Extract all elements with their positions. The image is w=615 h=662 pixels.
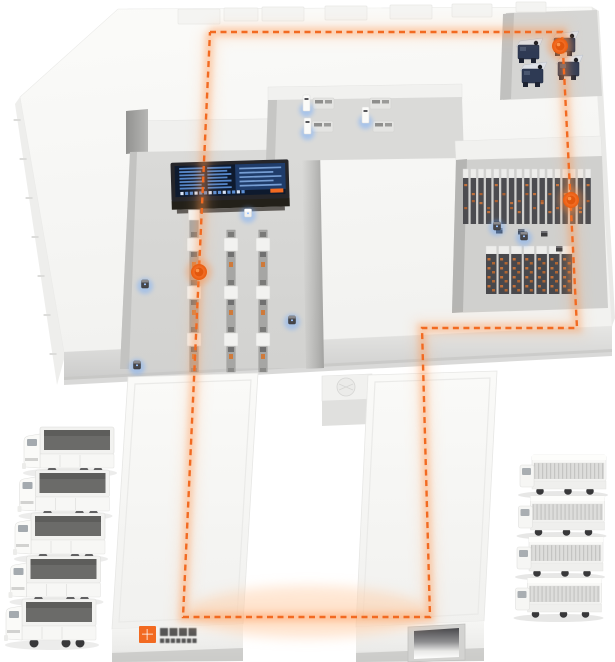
marker-core <box>556 42 565 51</box>
cab-window <box>9 611 19 618</box>
iot-device <box>137 278 153 294</box>
ribbed-panel <box>531 545 601 561</box>
ribbed-panel <box>534 463 604 479</box>
screen-accent <box>270 188 283 192</box>
dock-door-opening <box>414 628 459 659</box>
conveyor-station <box>224 238 238 251</box>
waypoint-conveyor-line <box>186 259 212 285</box>
conveyor-item <box>229 262 233 267</box>
cab-window <box>27 439 37 446</box>
conveyor-station <box>224 286 238 299</box>
cab-window <box>18 525 28 532</box>
conveyor-station <box>256 286 270 299</box>
rack-column-tall <box>585 169 590 224</box>
illustration-stage <box>0 0 615 662</box>
marker-highlight <box>557 43 561 47</box>
rack-column-short <box>486 246 497 294</box>
conveyor-station <box>256 238 270 251</box>
conveyor-station <box>256 333 270 346</box>
marker-highlight <box>196 269 200 273</box>
workstation-table <box>370 98 391 109</box>
cab-window <box>14 568 24 575</box>
wall-doorway-notch <box>126 109 148 154</box>
waypoint-storage-racks <box>558 187 584 213</box>
floor-box <box>541 231 548 237</box>
roof-skylight <box>262 7 304 21</box>
screen-tick <box>213 191 216 194</box>
connector-face <box>322 399 370 426</box>
rack-column-short <box>549 246 560 294</box>
conveyor-item <box>229 354 233 359</box>
conveyor-item <box>229 310 233 315</box>
cab-window <box>521 509 530 516</box>
roof-skylight <box>516 2 546 12</box>
workstation-table <box>313 98 334 109</box>
waypoint-top-dock <box>547 33 573 59</box>
screen-tick <box>180 192 183 195</box>
rack-column-tall <box>486 169 491 224</box>
iot-device <box>129 359 145 375</box>
rack-column-tall <box>540 169 545 224</box>
isometric-scene <box>0 0 615 662</box>
screen-tick <box>190 192 193 195</box>
marker-core <box>195 268 204 277</box>
roof-skylight <box>452 4 492 17</box>
roof-skylight <box>224 8 258 21</box>
rack-column-tall <box>509 169 514 224</box>
truck-left <box>4 599 99 650</box>
screen-tick <box>237 190 240 193</box>
screen-tick <box>223 191 226 194</box>
roof-skylight <box>178 9 220 24</box>
iot-device <box>489 220 505 236</box>
workstation-table <box>373 121 394 132</box>
conveyor-item <box>261 262 265 267</box>
conveyor-station <box>224 333 238 346</box>
rack-column-tall <box>494 169 499 224</box>
screen-tick <box>232 190 235 193</box>
iot-device <box>284 314 300 330</box>
cab-window <box>23 482 33 489</box>
conveyor-item <box>261 354 265 359</box>
screen-tick <box>227 190 230 193</box>
rack-column-tall <box>517 169 522 224</box>
iot-device <box>516 230 532 246</box>
rack-column-tall <box>501 169 506 224</box>
rack-column-tall <box>547 169 552 224</box>
rack-column-short <box>536 246 547 294</box>
cab-window <box>518 591 527 598</box>
screen-tick <box>241 190 244 193</box>
cab-window <box>519 550 528 557</box>
workstation-recess <box>266 84 464 161</box>
ribbed-panel <box>533 504 603 520</box>
floor-box <box>556 246 563 252</box>
rack-column-tall <box>478 169 483 224</box>
recess-floor <box>266 97 464 161</box>
rack-column-tall <box>471 169 476 224</box>
rack-column-tall <box>524 169 529 224</box>
cab-window <box>522 468 531 475</box>
rack-column-tall <box>532 169 537 224</box>
rack-column-tall <box>463 169 468 224</box>
rack-column-short <box>511 246 522 294</box>
rack-column-short <box>524 246 535 294</box>
rack-column-short <box>499 246 510 294</box>
truck-fleet-right <box>514 455 609 622</box>
storage-recess <box>452 136 608 313</box>
marker-core <box>567 196 576 205</box>
workstation-table <box>312 121 333 132</box>
screen-tick <box>185 192 188 195</box>
roof-skylight <box>325 6 367 20</box>
control-dashboard <box>170 159 289 213</box>
marker-highlight <box>568 197 572 201</box>
iot-device <box>240 207 256 223</box>
roof-skylight <box>390 5 432 19</box>
ribbed-panel <box>530 586 600 602</box>
conveyor-item <box>261 310 265 315</box>
screen-tick <box>218 191 221 194</box>
